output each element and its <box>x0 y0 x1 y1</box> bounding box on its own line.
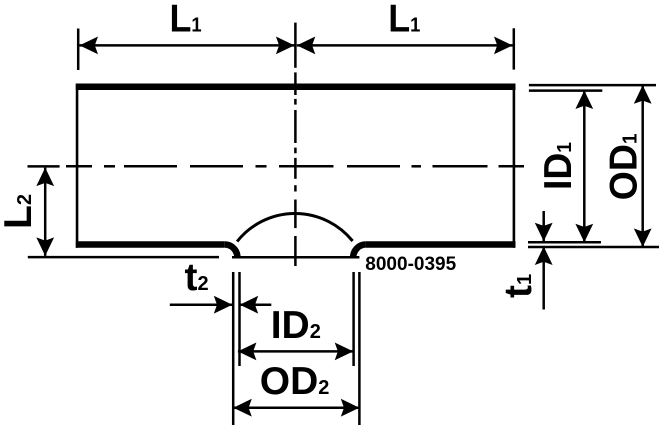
svg-text:L1: L1 <box>170 0 202 40</box>
svg-text:L1: L1 <box>388 0 420 40</box>
svg-text:OD2: OD2 <box>260 360 330 403</box>
svg-text:t2: t2 <box>185 256 209 299</box>
svg-text:ID1: ID1 <box>536 142 580 190</box>
svg-text:t1: t1 <box>497 274 540 298</box>
svg-text:L2: L2 <box>0 194 40 229</box>
svg-text:8000-0395: 8000-0395 <box>365 254 456 275</box>
svg-text:OD1: OD1 <box>602 133 646 200</box>
svg-text:ID2: ID2 <box>271 304 321 347</box>
